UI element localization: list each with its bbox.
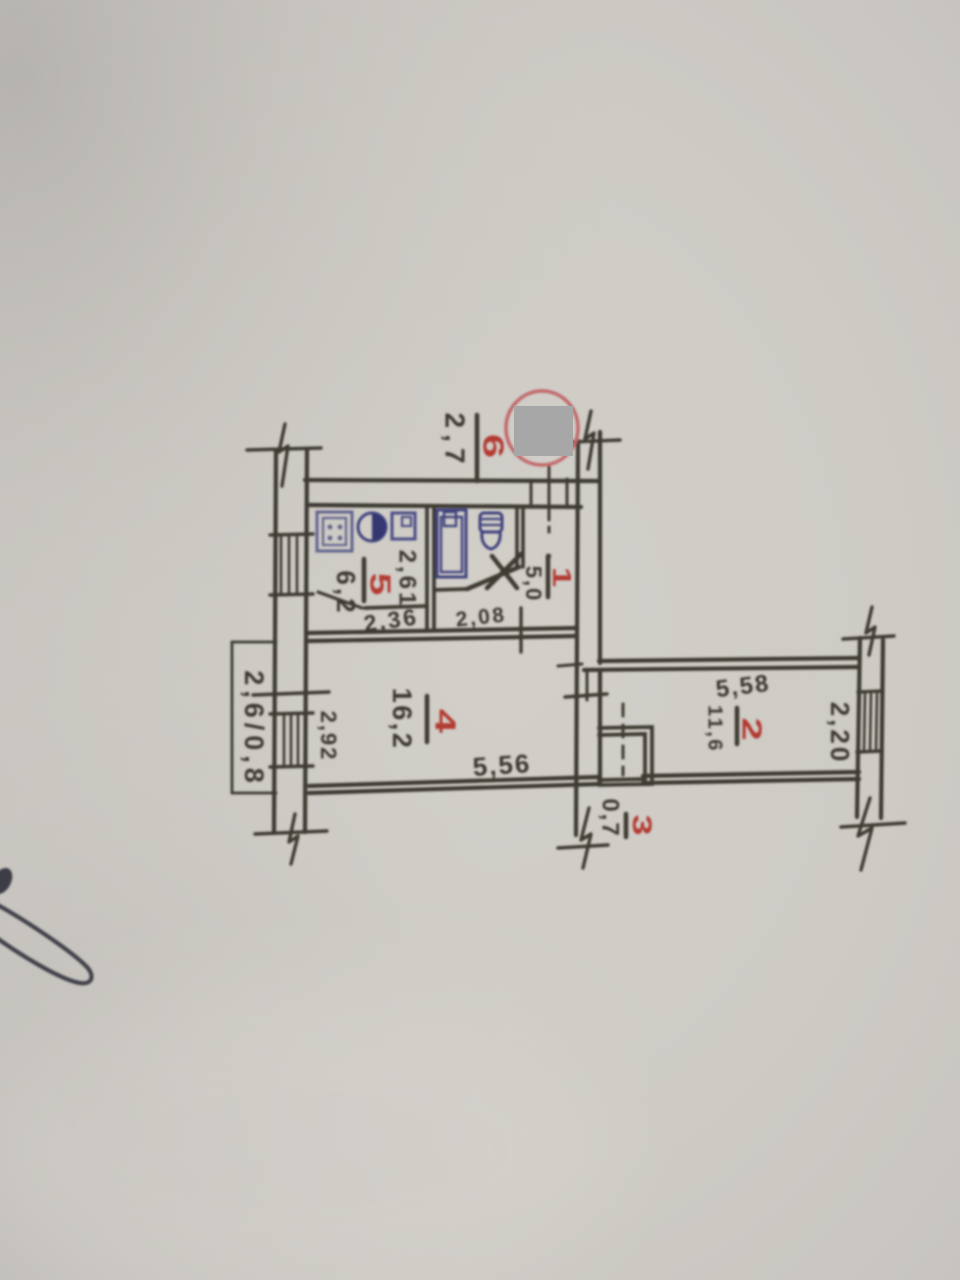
svg-text:6,2: 6,2 xyxy=(331,570,361,615)
svg-text:1: 1 xyxy=(547,567,577,587)
svg-text:4: 4 xyxy=(429,709,461,734)
svg-text:2,6/0,8: 2,6/0,8 xyxy=(239,670,269,788)
svg-text:6: 6 xyxy=(477,434,509,458)
svg-text:5,56: 5,56 xyxy=(472,748,533,782)
svg-text:0,7: 0,7 xyxy=(597,798,624,837)
svg-text:2,92: 2,92 xyxy=(316,711,341,762)
svg-text:2,20: 2,20 xyxy=(825,702,855,765)
svg-text:11,6: 11,6 xyxy=(704,705,726,753)
svg-text:5: 5 xyxy=(364,573,396,596)
svg-text:3: 3 xyxy=(627,814,657,835)
svg-text:2,61: 2,61 xyxy=(394,550,421,609)
svg-text:2,7: 2,7 xyxy=(440,413,471,470)
svg-text:16,2: 16,2 xyxy=(387,688,417,751)
svg-text:2: 2 xyxy=(736,717,767,740)
svg-text:5,0: 5,0 xyxy=(521,566,546,603)
